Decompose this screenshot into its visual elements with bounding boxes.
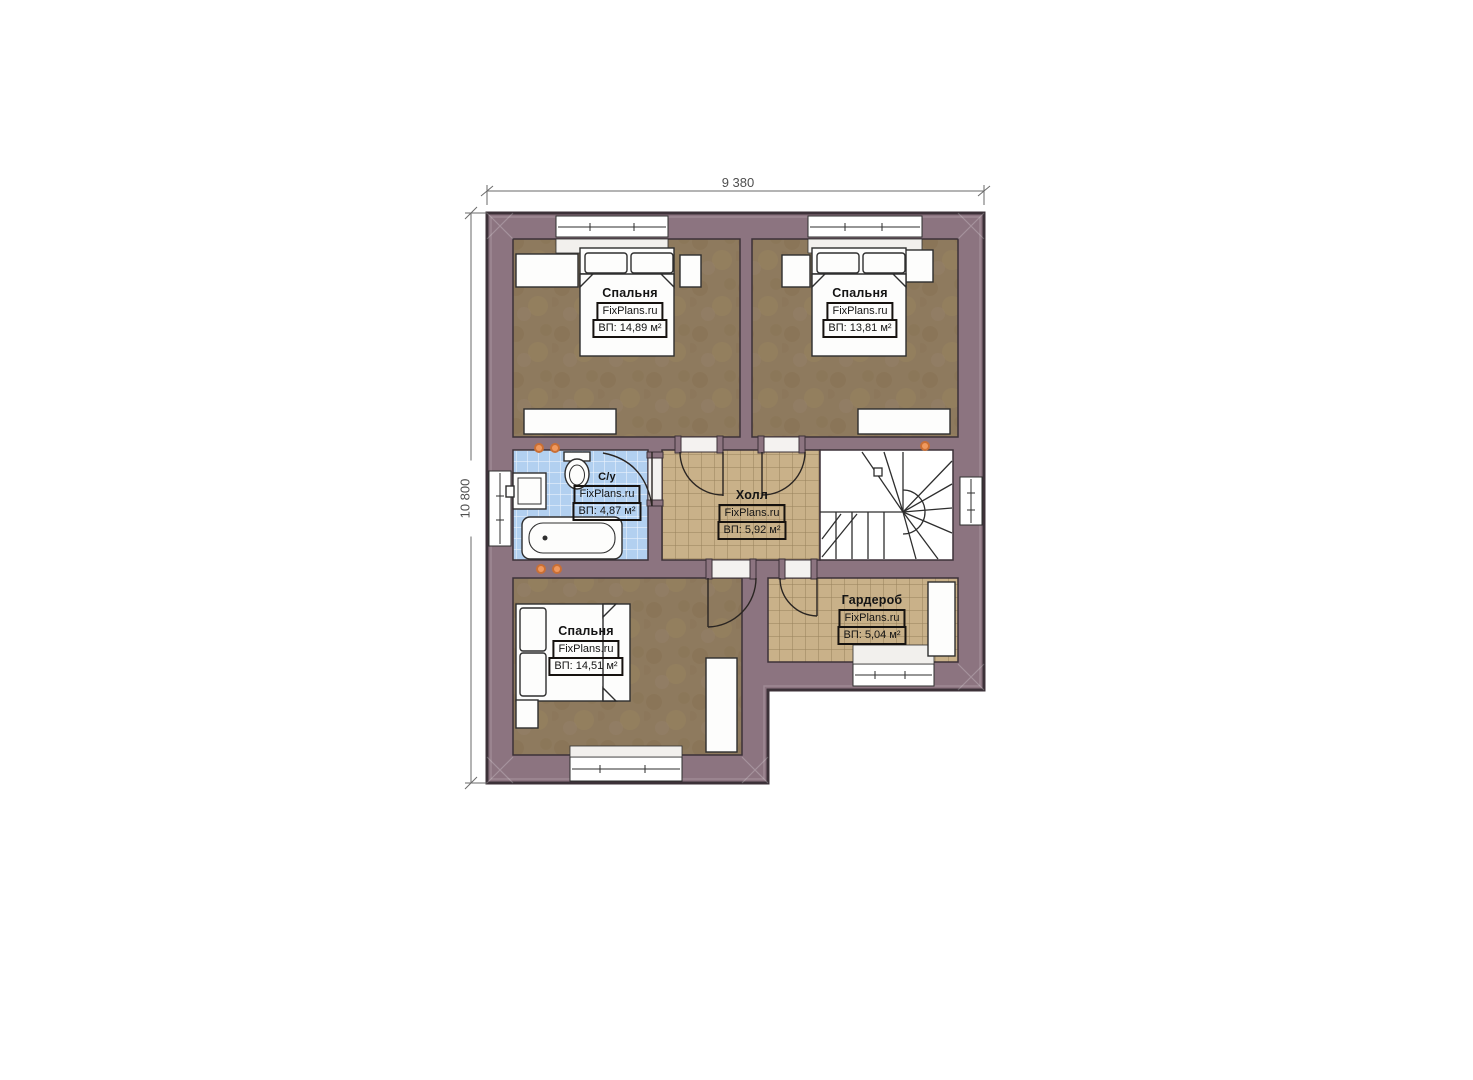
area-box: ВП: 14,89 м² (592, 319, 667, 338)
room-name: Спальня (558, 624, 613, 638)
room-label-bedroom-top-left: Спальня FixPlans.ru ВП: 14,89 м² (592, 286, 667, 338)
window-bottom-wardrobe (853, 664, 934, 686)
dimension-width-label: 9 380 (700, 175, 776, 190)
area-box: ВП: 5,92 м² (717, 521, 786, 540)
area-box: ВП: 13,81 м² (822, 319, 897, 338)
dresser (516, 254, 578, 287)
area-box: ВП: 14,51 м² (548, 657, 623, 676)
window-top-left (556, 216, 668, 237)
window-sill (853, 645, 934, 664)
window-right-staircase (960, 477, 982, 525)
room-label-wardrobe: Гардероб FixPlans.ru ВП: 5,04 м² (837, 593, 906, 645)
window-bottom-bedroom (570, 757, 682, 781)
room-label-hall: Холл FixPlans.ru ВП: 5,92 м² (717, 488, 786, 540)
closet (524, 409, 616, 434)
closet (706, 658, 737, 752)
room-label-bathroom: С/у FixPlans.ru ВП: 4,87 м² (572, 471, 641, 521)
window-top-right (808, 216, 922, 237)
stair-newel-post (874, 468, 882, 476)
nightstand (516, 700, 538, 728)
closet (928, 582, 955, 656)
closet (858, 409, 950, 434)
floor-staircase (820, 450, 953, 560)
nightstand (782, 255, 810, 287)
window-left-bathroom (489, 471, 511, 546)
room-name: Холл (736, 488, 768, 502)
room-label-bedroom-top-right: Спальня FixPlans.ru ВП: 13,81 м² (822, 286, 897, 338)
area-box: ВП: 5,04 м² (837, 626, 906, 645)
room-name: Спальня (832, 286, 887, 300)
window-sill (570, 746, 682, 757)
room-name: Спальня (602, 286, 657, 300)
room-name: Гардероб (842, 593, 903, 607)
nightstand (905, 250, 933, 282)
area-box: ВП: 4,87 м² (572, 502, 641, 521)
floor-plan-drawing (0, 0, 1473, 1080)
room-name: С/у (598, 471, 616, 483)
room-label-bedroom-bottom: Спальня FixPlans.ru ВП: 14,51 м² (548, 624, 623, 676)
nightstand (680, 255, 701, 287)
bathtub (522, 517, 622, 559)
dimension-height-label: 10 800 (458, 461, 473, 537)
floor-plan-page: 9 380 10 800 Спальня FixPlans.ru ВП: 14,… (0, 0, 1473, 1080)
